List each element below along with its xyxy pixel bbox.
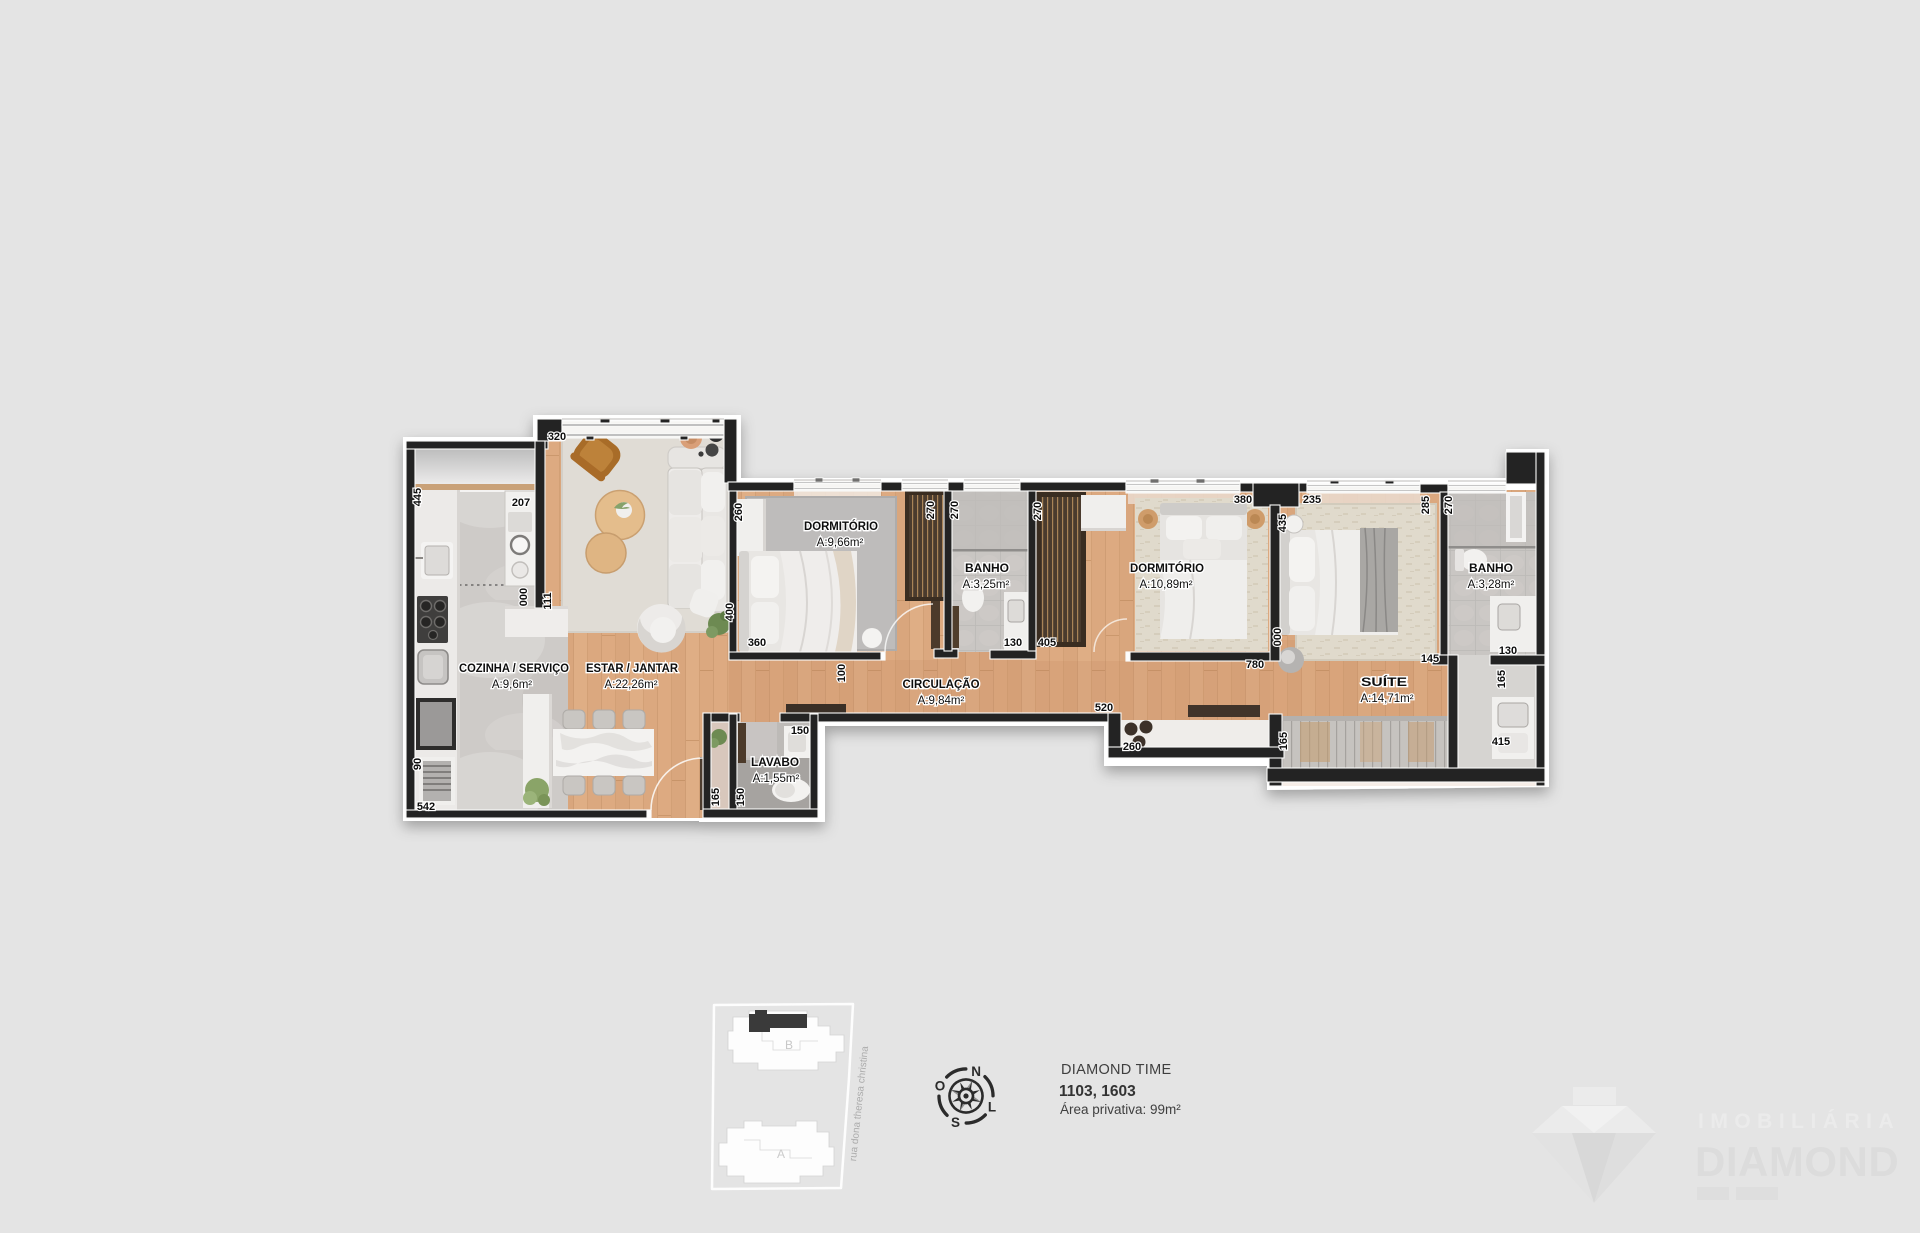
svg-text:542: 542 bbox=[417, 801, 435, 813]
svg-text:520: 520 bbox=[1095, 702, 1113, 714]
svg-text:400: 400 bbox=[724, 603, 736, 621]
svg-text:A:3,25m²: A:3,25m² bbox=[963, 579, 1010, 591]
svg-text:145: 145 bbox=[1421, 653, 1439, 665]
svg-text:DIAMOND: DIAMOND bbox=[1695, 1138, 1899, 1185]
svg-text:ESTAR / JANTAR: ESTAR / JANTAR bbox=[586, 661, 678, 675]
svg-text:A:9,66m²: A:9,66m² bbox=[817, 537, 864, 549]
svg-text:380: 380 bbox=[1234, 494, 1252, 506]
svg-text:435: 435 bbox=[1277, 514, 1289, 532]
svg-text:90: 90 bbox=[412, 758, 424, 770]
svg-text:A:9,6m²: A:9,6m² bbox=[492, 679, 532, 691]
svg-text:S: S bbox=[951, 1115, 960, 1130]
svg-text:DORMITÓRIO: DORMITÓRIO bbox=[804, 518, 878, 533]
svg-text:405: 405 bbox=[1038, 637, 1056, 649]
svg-text:B: B bbox=[785, 1038, 793, 1052]
svg-text:360: 360 bbox=[748, 637, 766, 649]
svg-text:270: 270 bbox=[949, 501, 961, 519]
svg-text:O: O bbox=[935, 1079, 946, 1094]
svg-text:165: 165 bbox=[1496, 670, 1508, 688]
svg-text:260: 260 bbox=[733, 503, 745, 521]
svg-text:270: 270 bbox=[1032, 502, 1044, 520]
svg-text:BANHO: BANHO bbox=[1469, 561, 1513, 575]
svg-text:A:14,71m²: A:14,71m² bbox=[1360, 693, 1413, 705]
svg-text:150: 150 bbox=[735, 788, 747, 806]
svg-text:260: 260 bbox=[1123, 741, 1141, 753]
svg-text:415: 415 bbox=[1492, 736, 1510, 748]
svg-text:DORMITÓRIO: DORMITÓRIO bbox=[1130, 560, 1204, 575]
svg-text:235: 235 bbox=[1303, 494, 1321, 506]
svg-text:A:22,26m²: A:22,26m² bbox=[604, 679, 657, 691]
svg-text:1103, 1603: 1103, 1603 bbox=[1059, 1083, 1136, 1100]
svg-text:BANHO: BANHO bbox=[965, 561, 1009, 575]
svg-text:L: L bbox=[988, 1099, 996, 1114]
svg-text:A:1,55m²: A:1,55m² bbox=[753, 773, 800, 785]
svg-text:CIRCULAÇÃO: CIRCULAÇÃO bbox=[903, 676, 980, 691]
svg-text:780: 780 bbox=[1246, 659, 1264, 671]
svg-text:111: 111 bbox=[542, 592, 554, 609]
svg-text:A:10,89m²: A:10,89m² bbox=[1139, 579, 1192, 591]
svg-text:150: 150 bbox=[791, 725, 809, 737]
svg-text:SUÍTE: SUÍTE bbox=[1361, 674, 1407, 689]
svg-text:130: 130 bbox=[1499, 645, 1517, 657]
svg-text:N: N bbox=[971, 1064, 981, 1079]
svg-text:000: 000 bbox=[1272, 628, 1284, 646]
svg-text:000: 000 bbox=[518, 588, 530, 606]
svg-text:DIAMOND TIME: DIAMOND TIME bbox=[1061, 1062, 1172, 1078]
svg-text:285: 285 bbox=[1420, 496, 1432, 514]
svg-text:COZINHA / SERVIÇO: COZINHA / SERVIÇO bbox=[459, 661, 569, 675]
svg-text:LAVABO: LAVABO bbox=[751, 755, 799, 769]
svg-text:100: 100 bbox=[836, 664, 848, 682]
svg-text:165: 165 bbox=[1278, 732, 1290, 750]
svg-text:130: 130 bbox=[1004, 637, 1022, 649]
svg-text:320: 320 bbox=[548, 431, 566, 443]
svg-text:A: A bbox=[777, 1147, 785, 1161]
svg-text:IMOBILIÁRIA: IMOBILIÁRIA bbox=[1698, 1110, 1900, 1133]
svg-text:445: 445 bbox=[412, 488, 424, 506]
svg-text:165: 165 bbox=[710, 788, 722, 806]
svg-text:A:9,84m²: A:9,84m² bbox=[918, 695, 965, 707]
svg-text:270: 270 bbox=[1443, 496, 1455, 514]
svg-text:Área privativa: 99m²: Área privativa: 99m² bbox=[1060, 1102, 1181, 1117]
svg-text:270: 270 bbox=[925, 501, 937, 519]
svg-text:A:3,28m²: A:3,28m² bbox=[1468, 579, 1515, 591]
svg-text:207: 207 bbox=[512, 497, 530, 509]
